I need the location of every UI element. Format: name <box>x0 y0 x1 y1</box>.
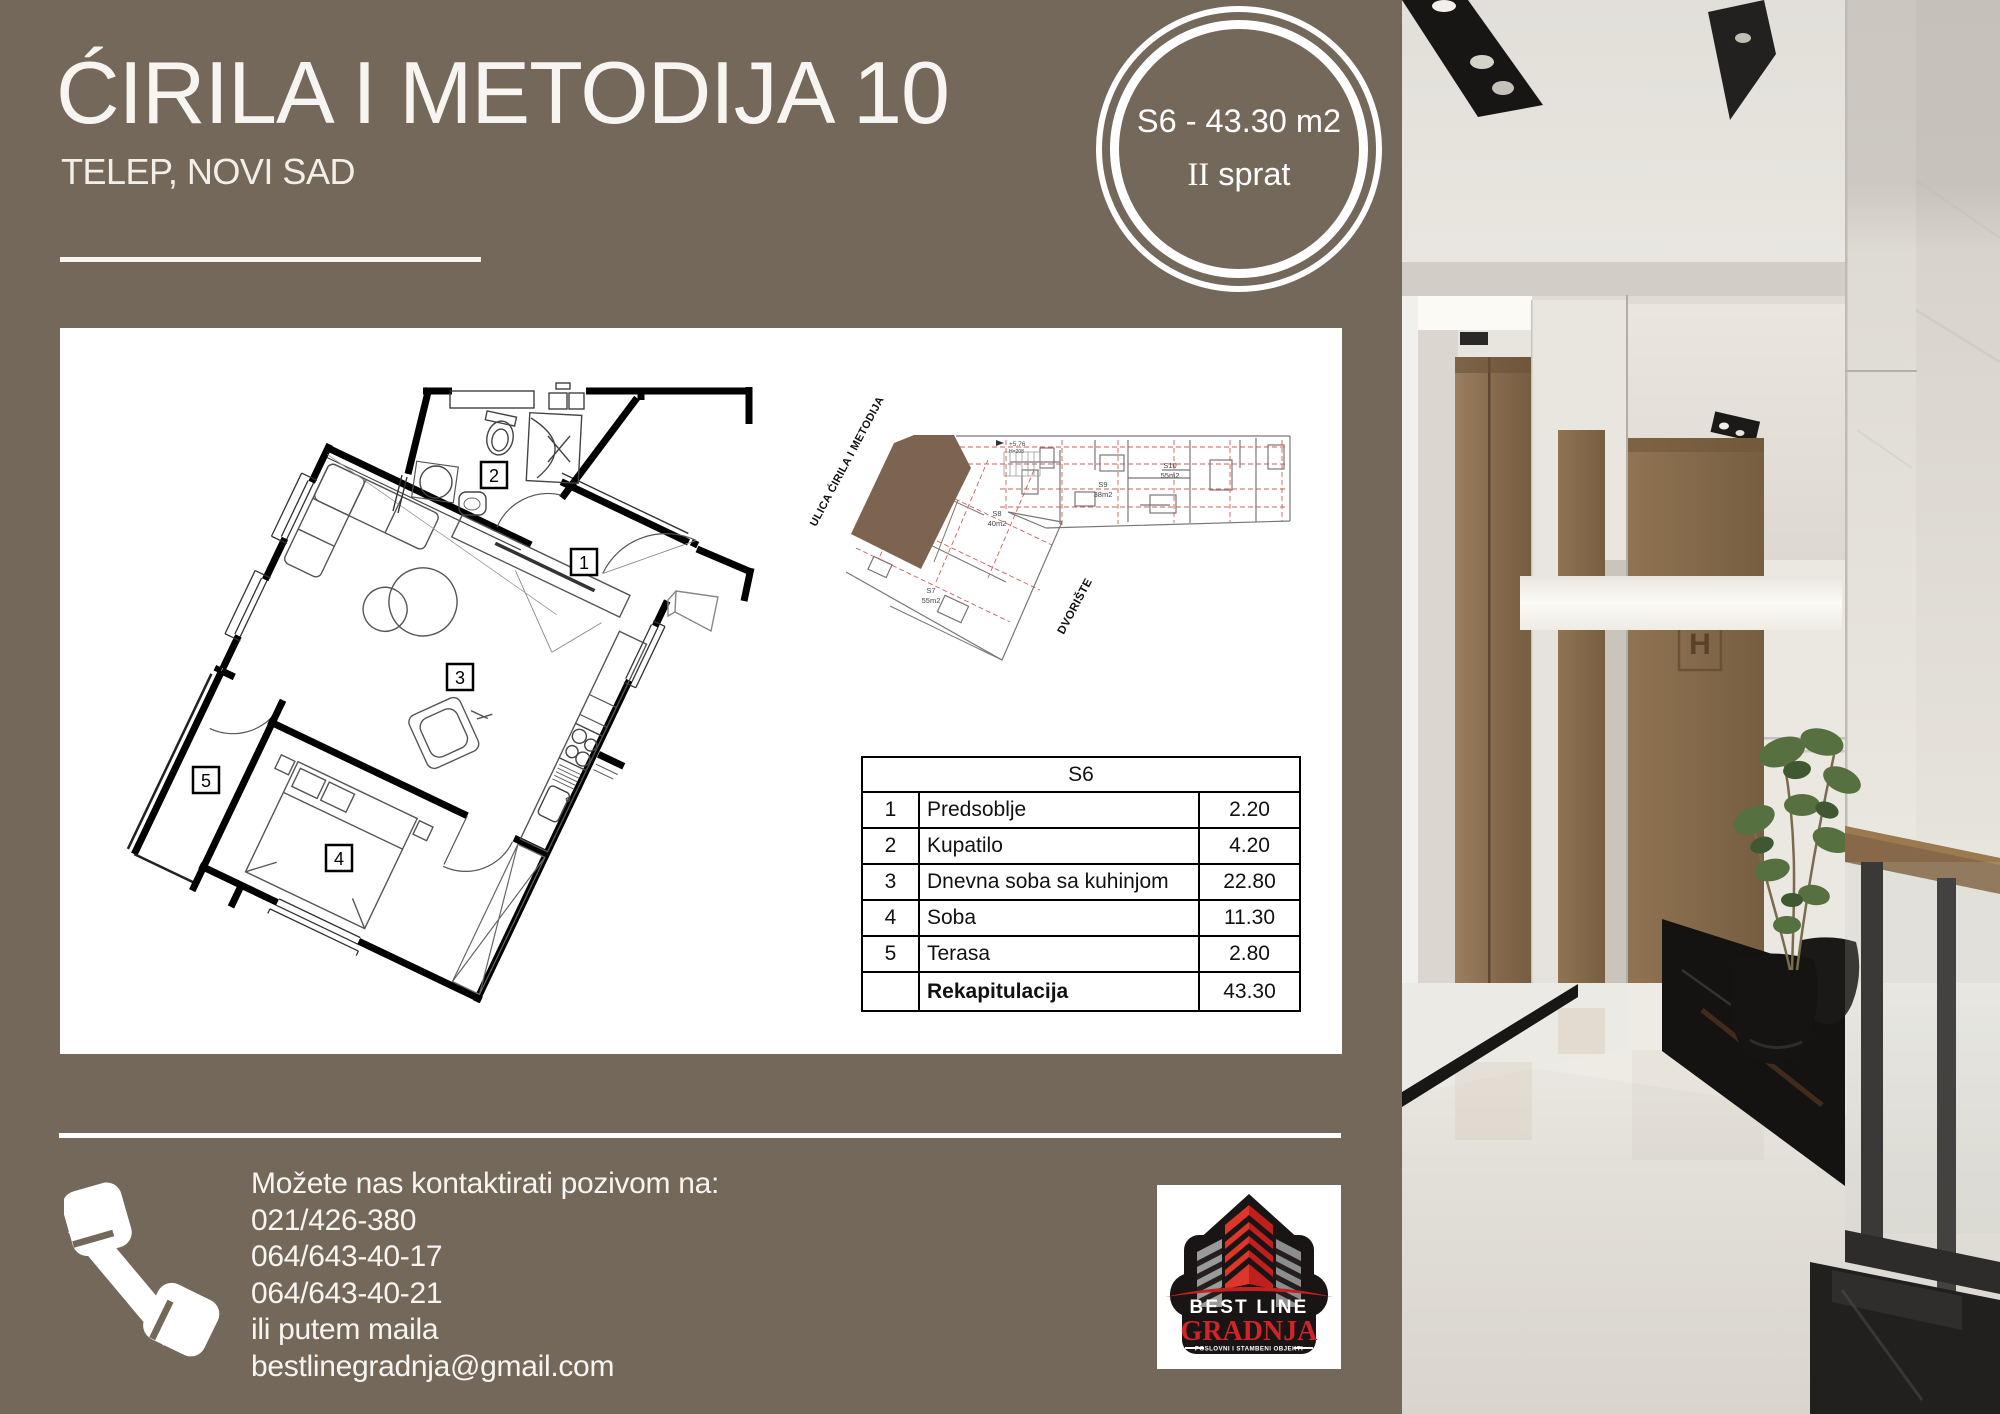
svg-text:H: H <box>1689 628 1711 661</box>
svg-text:1: 1 <box>579 553 589 573</box>
svg-text:DVORIŠTE: DVORIŠTE <box>1055 576 1095 636</box>
svg-text:H=208: H=208 <box>1009 449 1024 455</box>
svg-text:BEST LINE: BEST LINE <box>1189 1297 1308 1318</box>
svg-text:S7: S7 <box>926 586 935 595</box>
svg-text:5: 5 <box>201 771 211 791</box>
svg-text:POSLOVNI I STAMBENI OBJEKTI: POSLOVNI I STAMBENI OBJEKTI <box>1195 1346 1303 1353</box>
svg-text:S9: S9 <box>1098 480 1107 489</box>
svg-text:55m2: 55m2 <box>1161 471 1180 480</box>
svg-text:+5.76: +5.76 <box>1009 441 1026 448</box>
svg-text:S8: S8 <box>992 509 1001 518</box>
svg-text:55m2: 55m2 <box>922 596 941 605</box>
svg-text:2: 2 <box>489 466 499 486</box>
svg-text:4: 4 <box>334 849 344 869</box>
svg-text:S10: S10 <box>1163 461 1176 470</box>
svg-text:GRADNJA: GRADNJA <box>1181 1316 1319 1347</box>
svg-text:38m2: 38m2 <box>1094 490 1113 499</box>
svg-text:40m2: 40m2 <box>988 519 1007 528</box>
svg-text:3: 3 <box>455 668 465 688</box>
